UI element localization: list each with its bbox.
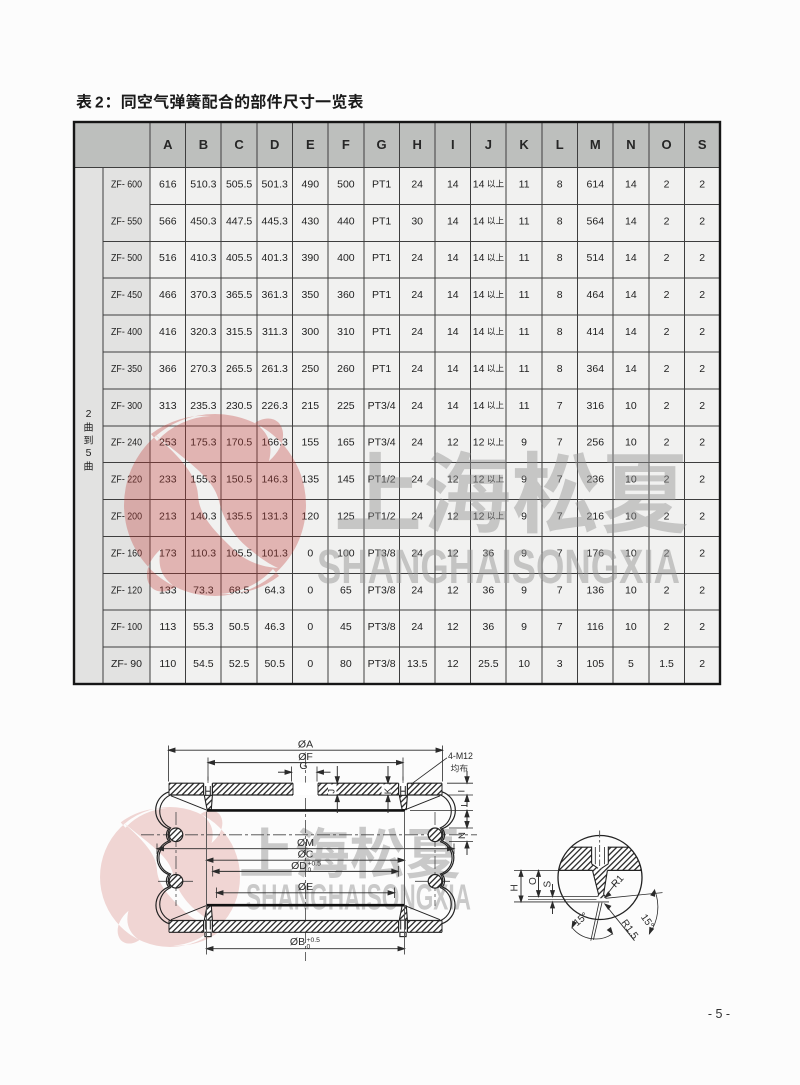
svg-text:11: 11	[519, 363, 530, 375]
svg-text:8: 8	[557, 363, 563, 375]
svg-text:B: B	[199, 137, 208, 152]
svg-text:24: 24	[411, 474, 423, 486]
svg-text:2: 2	[699, 474, 705, 486]
svg-text:ØB: ØB	[290, 936, 305, 948]
svg-text:24: 24	[411, 621, 423, 633]
svg-text:ZF- 500: ZF- 500	[111, 252, 142, 264]
svg-text:24: 24	[411, 400, 423, 412]
svg-text:14: 14	[447, 178, 459, 190]
svg-text:ØM: ØM	[297, 837, 314, 849]
svg-text:11: 11	[519, 289, 530, 301]
svg-text:145: 145	[337, 474, 355, 486]
svg-text:D: D	[270, 137, 279, 152]
svg-text:566: 566	[159, 215, 177, 227]
svg-text:261.3: 261.3	[262, 363, 288, 375]
svg-text:510.3: 510.3	[190, 178, 216, 190]
svg-text:14: 14	[625, 326, 637, 338]
svg-text:52.5: 52.5	[229, 658, 250, 670]
svg-text:8: 8	[557, 289, 563, 301]
svg-text:320.3: 320.3	[190, 326, 216, 338]
svg-text:N: N	[457, 832, 468, 839]
svg-text:10: 10	[518, 658, 530, 670]
svg-text:ZF- 90: ZF- 90	[111, 658, 142, 670]
svg-text:24: 24	[411, 252, 423, 264]
svg-text:45: 45	[340, 621, 352, 633]
svg-text:50.5: 50.5	[264, 658, 285, 670]
svg-text:360: 360	[337, 289, 355, 301]
svg-text:ZF- 450: ZF- 450	[111, 289, 142, 301]
svg-text:14: 14	[625, 178, 637, 190]
svg-text:447.5: 447.5	[226, 215, 252, 227]
svg-text:13.5: 13.5	[407, 658, 428, 670]
svg-text:313: 313	[159, 400, 177, 412]
svg-text:ZF- 240: ZF- 240	[111, 437, 142, 449]
svg-text:490: 490	[302, 178, 320, 190]
svg-text:PT1: PT1	[372, 326, 391, 338]
svg-text:9: 9	[521, 621, 527, 633]
svg-text:5: 5	[86, 447, 92, 459]
svg-text:12: 12	[447, 621, 459, 633]
svg-text:14: 14	[447, 363, 459, 375]
svg-text:14: 14	[473, 363, 485, 375]
svg-text:G: G	[377, 137, 387, 152]
svg-text:165: 165	[337, 437, 355, 449]
svg-text:64.3: 64.3	[264, 584, 285, 596]
svg-text:14: 14	[625, 252, 637, 264]
svg-text:PT3/8: PT3/8	[368, 658, 396, 670]
svg-text:2: 2	[699, 215, 705, 227]
svg-text:250: 250	[302, 363, 320, 375]
svg-text:I: I	[451, 137, 455, 152]
svg-text:2: 2	[699, 400, 705, 412]
svg-text:2: 2	[664, 621, 670, 633]
svg-text:350: 350	[302, 289, 320, 301]
svg-text:E: E	[306, 137, 315, 152]
svg-text:24: 24	[411, 363, 423, 375]
svg-text:14: 14	[473, 252, 485, 264]
svg-text:2: 2	[699, 547, 705, 559]
svg-text:364: 364	[587, 363, 605, 375]
svg-text:260: 260	[337, 363, 355, 375]
svg-text:2: 2	[699, 511, 705, 523]
svg-text:36: 36	[483, 621, 495, 633]
svg-text:14: 14	[473, 178, 485, 190]
svg-text:12: 12	[473, 437, 485, 449]
svg-text:270.3: 270.3	[190, 363, 216, 375]
svg-text:N: N	[626, 137, 635, 152]
svg-text:7: 7	[557, 400, 563, 412]
svg-text:ZF- 350: ZF- 350	[111, 363, 142, 375]
svg-text:361.3: 361.3	[262, 289, 288, 301]
svg-text:14: 14	[473, 215, 485, 227]
svg-text:O: O	[662, 137, 672, 152]
svg-text:225: 225	[337, 400, 355, 412]
svg-text:24: 24	[411, 289, 423, 301]
svg-text:2: 2	[95, 95, 104, 112]
svg-text:55.3: 55.3	[193, 621, 214, 633]
svg-text:ØD: ØD	[291, 860, 307, 872]
svg-text:14: 14	[625, 215, 637, 227]
svg-text:SHANGHAISONGXIA: SHANGHAISONGXIA	[317, 541, 680, 594]
svg-text:310: 310	[337, 326, 355, 338]
svg-text:401.3: 401.3	[262, 252, 288, 264]
svg-text:C: C	[234, 137, 244, 152]
svg-text:S: S	[543, 881, 554, 888]
svg-text:414: 414	[587, 326, 605, 338]
svg-text:2: 2	[664, 437, 670, 449]
svg-text:14: 14	[447, 289, 459, 301]
svg-text:2: 2	[664, 252, 670, 264]
svg-text:2: 2	[699, 326, 705, 338]
svg-text:0: 0	[307, 621, 313, 633]
svg-text:315.5: 315.5	[226, 326, 252, 338]
svg-text:0: 0	[308, 867, 312, 874]
svg-text:11: 11	[519, 178, 530, 190]
svg-text:8: 8	[557, 252, 563, 264]
svg-text:2: 2	[699, 658, 705, 670]
svg-text:4-M12: 4-M12	[448, 751, 473, 761]
svg-text:ZF- 550: ZF- 550	[111, 215, 142, 227]
svg-text:105: 105	[587, 658, 605, 670]
svg-text:2: 2	[664, 326, 670, 338]
svg-text:416: 416	[159, 326, 177, 338]
svg-text:L: L	[556, 137, 564, 152]
svg-text:14: 14	[625, 289, 637, 301]
svg-text:235.3: 235.3	[190, 400, 216, 412]
svg-text:11: 11	[519, 400, 530, 412]
svg-text:7: 7	[557, 621, 563, 633]
svg-text:ZF- 400: ZF- 400	[111, 326, 142, 338]
svg-text:564: 564	[587, 215, 605, 227]
svg-text:466: 466	[159, 289, 177, 301]
svg-text:PT1: PT1	[372, 363, 391, 375]
svg-text:12: 12	[447, 437, 459, 449]
svg-text:7: 7	[557, 437, 563, 449]
svg-text:500: 500	[337, 178, 355, 190]
svg-text:450.3: 450.3	[190, 215, 216, 227]
svg-text:614: 614	[587, 178, 605, 190]
svg-text:2: 2	[699, 621, 705, 633]
svg-text:2: 2	[664, 363, 670, 375]
svg-text:ZF- 100: ZF- 100	[111, 621, 142, 633]
svg-text:I: I	[457, 790, 468, 793]
svg-text:230.5: 230.5	[226, 400, 252, 412]
svg-text:PT3/8: PT3/8	[368, 621, 396, 633]
svg-text:14: 14	[473, 289, 485, 301]
svg-text:516: 516	[159, 252, 177, 264]
svg-text:11: 11	[519, 252, 530, 264]
svg-text:514: 514	[587, 252, 605, 264]
svg-text:14: 14	[625, 363, 637, 375]
svg-text:155: 155	[302, 437, 320, 449]
svg-text:0: 0	[307, 658, 313, 670]
svg-text:501.3: 501.3	[262, 178, 288, 190]
svg-text:L: L	[459, 801, 470, 806]
svg-text:PT3/4: PT3/4	[368, 400, 396, 412]
svg-text:0: 0	[307, 584, 313, 596]
svg-text:8: 8	[557, 178, 563, 190]
svg-text:445.3: 445.3	[262, 215, 288, 227]
svg-text:24: 24	[411, 178, 423, 190]
svg-text:365.5: 365.5	[226, 289, 252, 301]
svg-text:410.3: 410.3	[190, 252, 216, 264]
svg-text:2: 2	[664, 215, 670, 227]
svg-text:PT1: PT1	[372, 252, 391, 264]
svg-text:464: 464	[587, 289, 605, 301]
svg-text:0: 0	[307, 943, 311, 950]
svg-text:113: 113	[159, 621, 176, 633]
svg-text:616: 616	[159, 178, 177, 190]
svg-text:2: 2	[664, 178, 670, 190]
svg-text:PT3/4: PT3/4	[368, 437, 396, 449]
svg-text:0: 0	[307, 547, 313, 559]
svg-text:PT1: PT1	[372, 289, 391, 301]
svg-text:265.5: 265.5	[226, 363, 252, 375]
svg-text:2: 2	[699, 363, 705, 375]
svg-text:5: 5	[628, 658, 634, 670]
svg-text:14: 14	[447, 252, 459, 264]
svg-text:S: S	[698, 137, 707, 152]
svg-text:370.3: 370.3	[190, 289, 216, 301]
svg-text:ØE: ØE	[298, 881, 313, 893]
svg-text:505.5: 505.5	[226, 178, 252, 190]
svg-text:2: 2	[699, 178, 705, 190]
svg-text:14: 14	[473, 400, 485, 412]
svg-text:3: 3	[557, 658, 563, 670]
svg-text:14: 14	[447, 326, 459, 338]
svg-text:ZF- 300: ZF- 300	[111, 400, 142, 412]
svg-text:8: 8	[557, 215, 563, 227]
svg-text:11: 11	[519, 215, 530, 227]
svg-text:ØC: ØC	[298, 849, 314, 861]
svg-text:2: 2	[699, 289, 705, 301]
svg-text:316: 316	[587, 400, 605, 412]
svg-text:24: 24	[411, 437, 423, 449]
svg-text:11: 11	[519, 326, 530, 338]
svg-text:2: 2	[699, 252, 705, 264]
svg-text:ØA: ØA	[298, 739, 313, 751]
svg-text:O: O	[528, 877, 539, 885]
svg-text:2: 2	[664, 400, 670, 412]
svg-text:135: 135	[302, 474, 320, 486]
svg-text:311.3: 311.3	[262, 326, 288, 338]
svg-text:2: 2	[86, 408, 92, 420]
svg-text:ZF- 120: ZF- 120	[111, 584, 142, 596]
svg-text:215: 215	[302, 400, 320, 412]
svg-text:J: J	[327, 789, 338, 794]
svg-text:PT1: PT1	[372, 178, 391, 190]
svg-text:M: M	[590, 137, 601, 152]
svg-text:116: 116	[587, 621, 604, 633]
svg-text:K: K	[383, 787, 394, 794]
svg-text:12: 12	[447, 658, 459, 670]
svg-text:14: 14	[447, 400, 459, 412]
svg-text:A: A	[163, 137, 173, 152]
svg-text:10: 10	[625, 621, 637, 633]
svg-text:J: J	[485, 137, 492, 152]
svg-text:10: 10	[625, 400, 637, 412]
svg-text:30: 30	[411, 215, 423, 227]
svg-text:2: 2	[699, 437, 705, 449]
svg-text:400: 400	[337, 252, 355, 264]
svg-text:8: 8	[557, 326, 563, 338]
svg-text:F: F	[342, 137, 350, 152]
svg-text:10: 10	[625, 437, 637, 449]
svg-text:46.3: 46.3	[264, 621, 285, 633]
svg-text:54.5: 54.5	[193, 658, 214, 670]
svg-text:440: 440	[337, 215, 355, 227]
svg-text:226.3: 226.3	[262, 400, 288, 412]
svg-text:430: 430	[302, 215, 320, 227]
svg-text:PT1: PT1	[372, 215, 391, 227]
svg-text:366: 366	[159, 363, 177, 375]
svg-text:2: 2	[699, 584, 705, 596]
svg-text:390: 390	[302, 252, 320, 264]
svg-text:14: 14	[447, 215, 459, 227]
svg-text:2: 2	[664, 289, 670, 301]
svg-text:110: 110	[159, 658, 176, 670]
svg-text:G: G	[299, 760, 307, 772]
svg-text:1.5: 1.5	[659, 658, 674, 670]
svg-text:25.5: 25.5	[478, 658, 499, 670]
svg-text:K: K	[519, 137, 529, 152]
svg-text:80: 80	[340, 658, 352, 670]
svg-text:ZF- 600: ZF- 600	[111, 178, 142, 190]
svg-text:24: 24	[411, 326, 423, 338]
svg-text:300: 300	[302, 326, 320, 338]
svg-text:14: 14	[473, 326, 485, 338]
svg-text:256: 256	[587, 437, 605, 449]
svg-text:H: H	[510, 884, 521, 891]
svg-text:- 5 -: - 5 -	[708, 1007, 730, 1021]
svg-text:405.5: 405.5	[226, 252, 252, 264]
svg-text:9: 9	[521, 437, 527, 449]
svg-text:H: H	[413, 137, 422, 152]
svg-text:50.5: 50.5	[229, 621, 250, 633]
